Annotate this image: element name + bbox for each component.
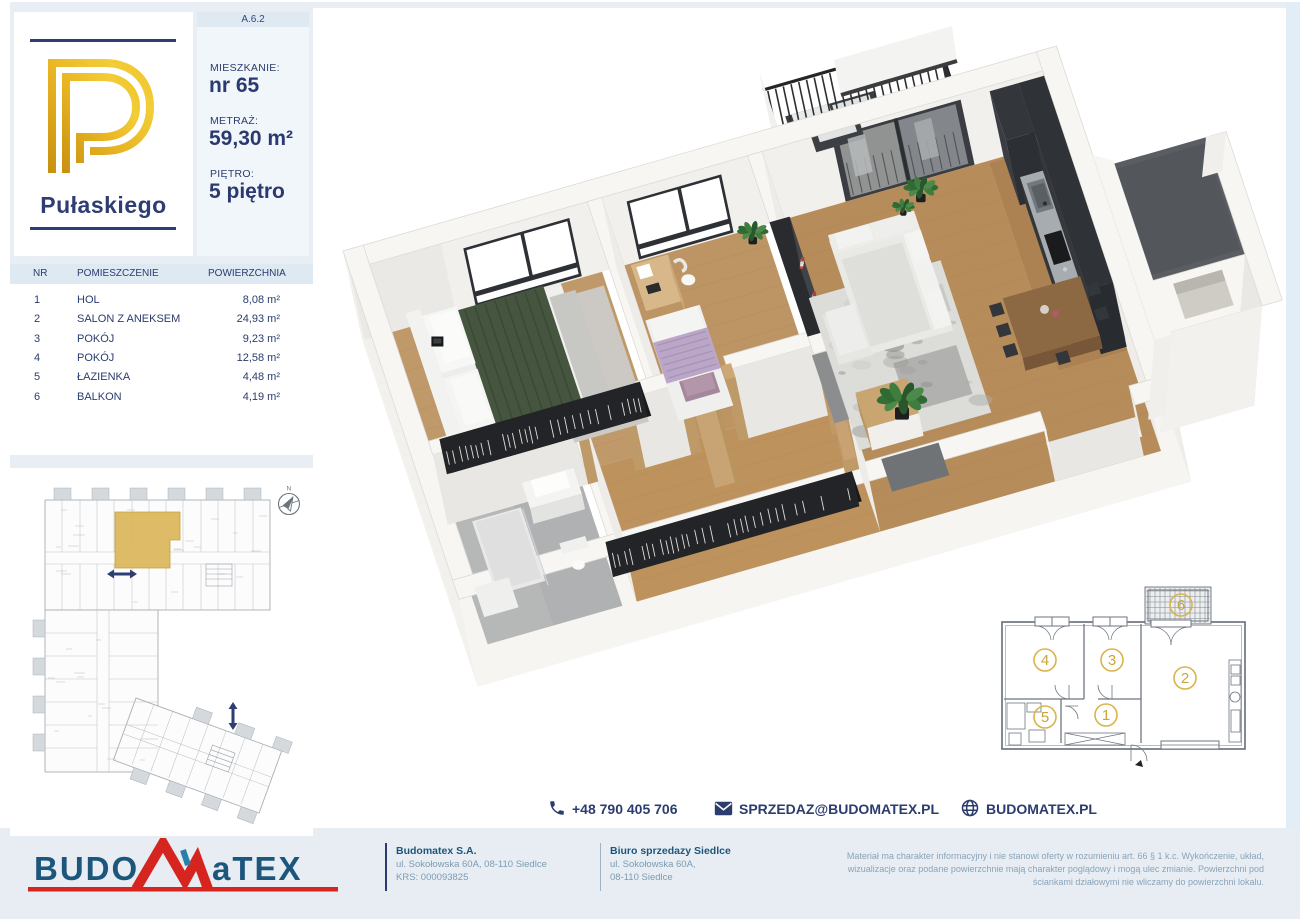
svg-text:3: 3 xyxy=(1108,652,1116,669)
svg-text:aTEX: aTEX xyxy=(212,850,303,887)
svg-text:2: 2 xyxy=(1181,670,1189,687)
svg-text:1: 1 xyxy=(1102,707,1110,724)
svg-text:5: 5 xyxy=(1041,709,1049,726)
svg-text:4: 4 xyxy=(1041,652,1049,669)
svg-text:BUDO: BUDO xyxy=(34,850,139,887)
svg-text:6: 6 xyxy=(1177,597,1185,614)
